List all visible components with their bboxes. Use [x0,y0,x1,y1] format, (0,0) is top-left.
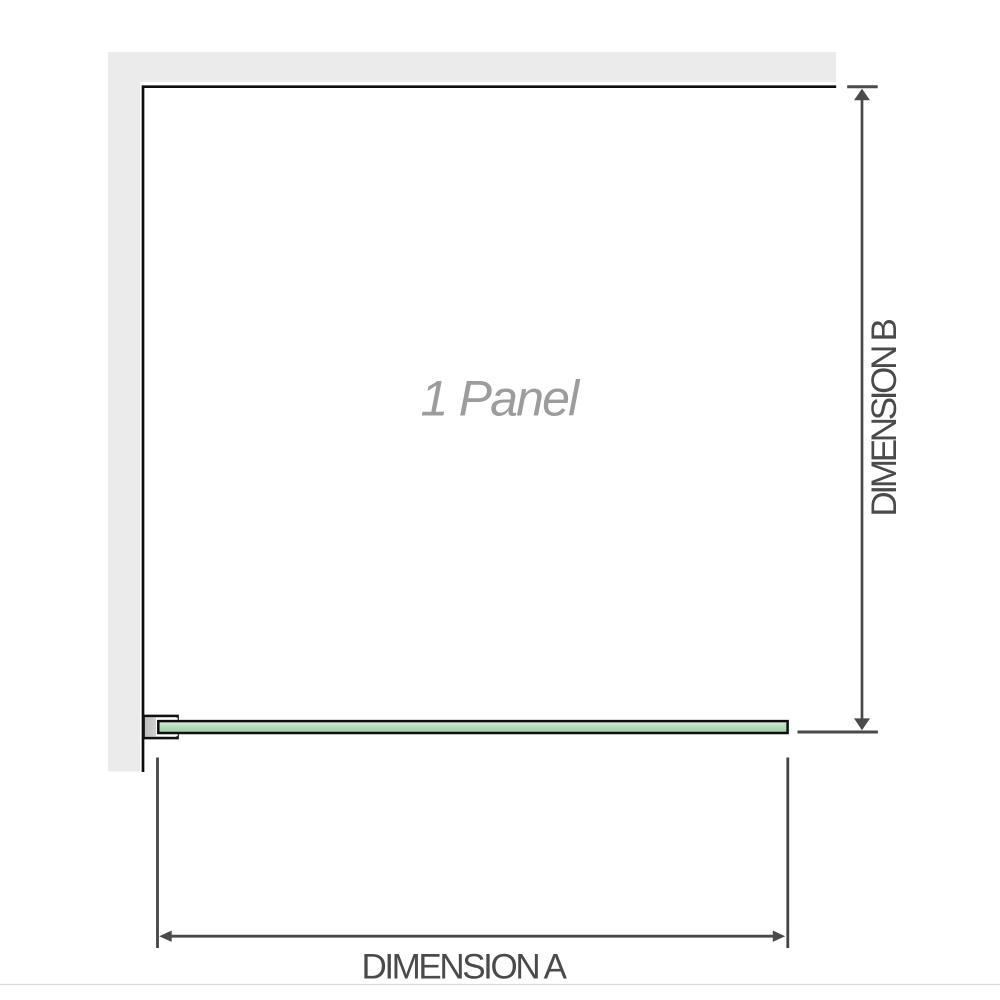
svg-text:DIMENSION B: DIMENSION B [865,319,904,516]
svg-text:1 Panel: 1 Panel [421,371,582,427]
svg-text:DIMENSION A: DIMENSION A [361,948,567,987]
